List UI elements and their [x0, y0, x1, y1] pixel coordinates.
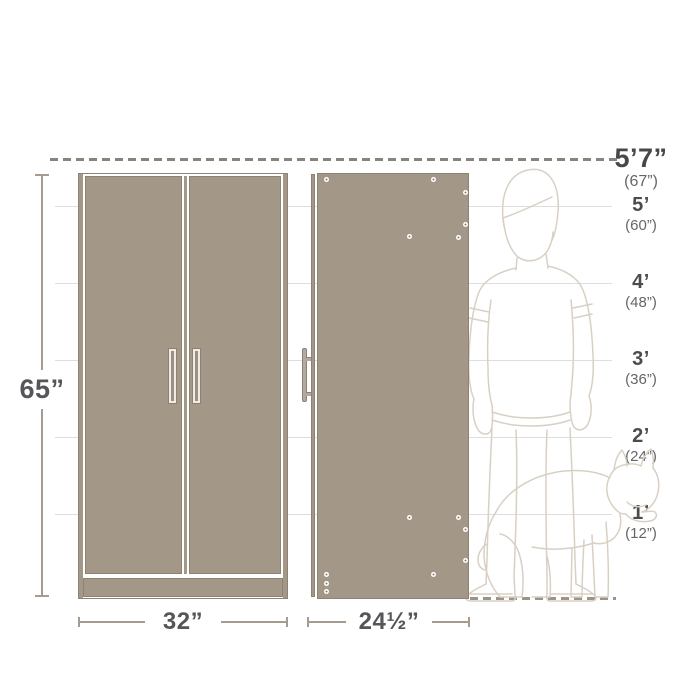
- screw-hole: [324, 589, 329, 594]
- screw-hole: [463, 222, 468, 227]
- cabinet-front-view: [78, 173, 288, 599]
- door-handle-right: [193, 349, 200, 403]
- reference-line-5ft7: [50, 158, 618, 161]
- screw-hole: [324, 572, 329, 577]
- cabinet-center-post: [184, 176, 187, 574]
- dog-silhouette: [478, 449, 659, 597]
- screw-hole: [431, 572, 436, 577]
- screw-hole: [324, 177, 329, 182]
- screw-hole: [456, 235, 461, 240]
- screw-hole: [324, 581, 329, 586]
- screw-hole: [407, 234, 412, 239]
- cabinet-door-right: [189, 176, 281, 574]
- side-panel: [317, 173, 469, 599]
- screw-hole: [463, 558, 468, 563]
- product-dimensions-diagram: 5’7” (67”) 5’ (60”) 4’ (48”) 3’ (36”) 2’…: [0, 0, 700, 700]
- cabinet-base: [83, 578, 283, 597]
- screw-hole: [463, 527, 468, 532]
- screw-hole: [431, 177, 436, 182]
- cabinet-right-edge: [283, 174, 287, 598]
- door-handle-left: [169, 349, 176, 403]
- side-view-door-edge: [311, 174, 315, 597]
- screw-hole: [407, 515, 412, 520]
- cabinet-side-view: [307, 173, 470, 599]
- cabinet-left-edge: [79, 174, 83, 598]
- cabinet-door-left: [85, 176, 182, 574]
- screw-hole: [463, 190, 468, 195]
- screw-hole: [456, 515, 461, 520]
